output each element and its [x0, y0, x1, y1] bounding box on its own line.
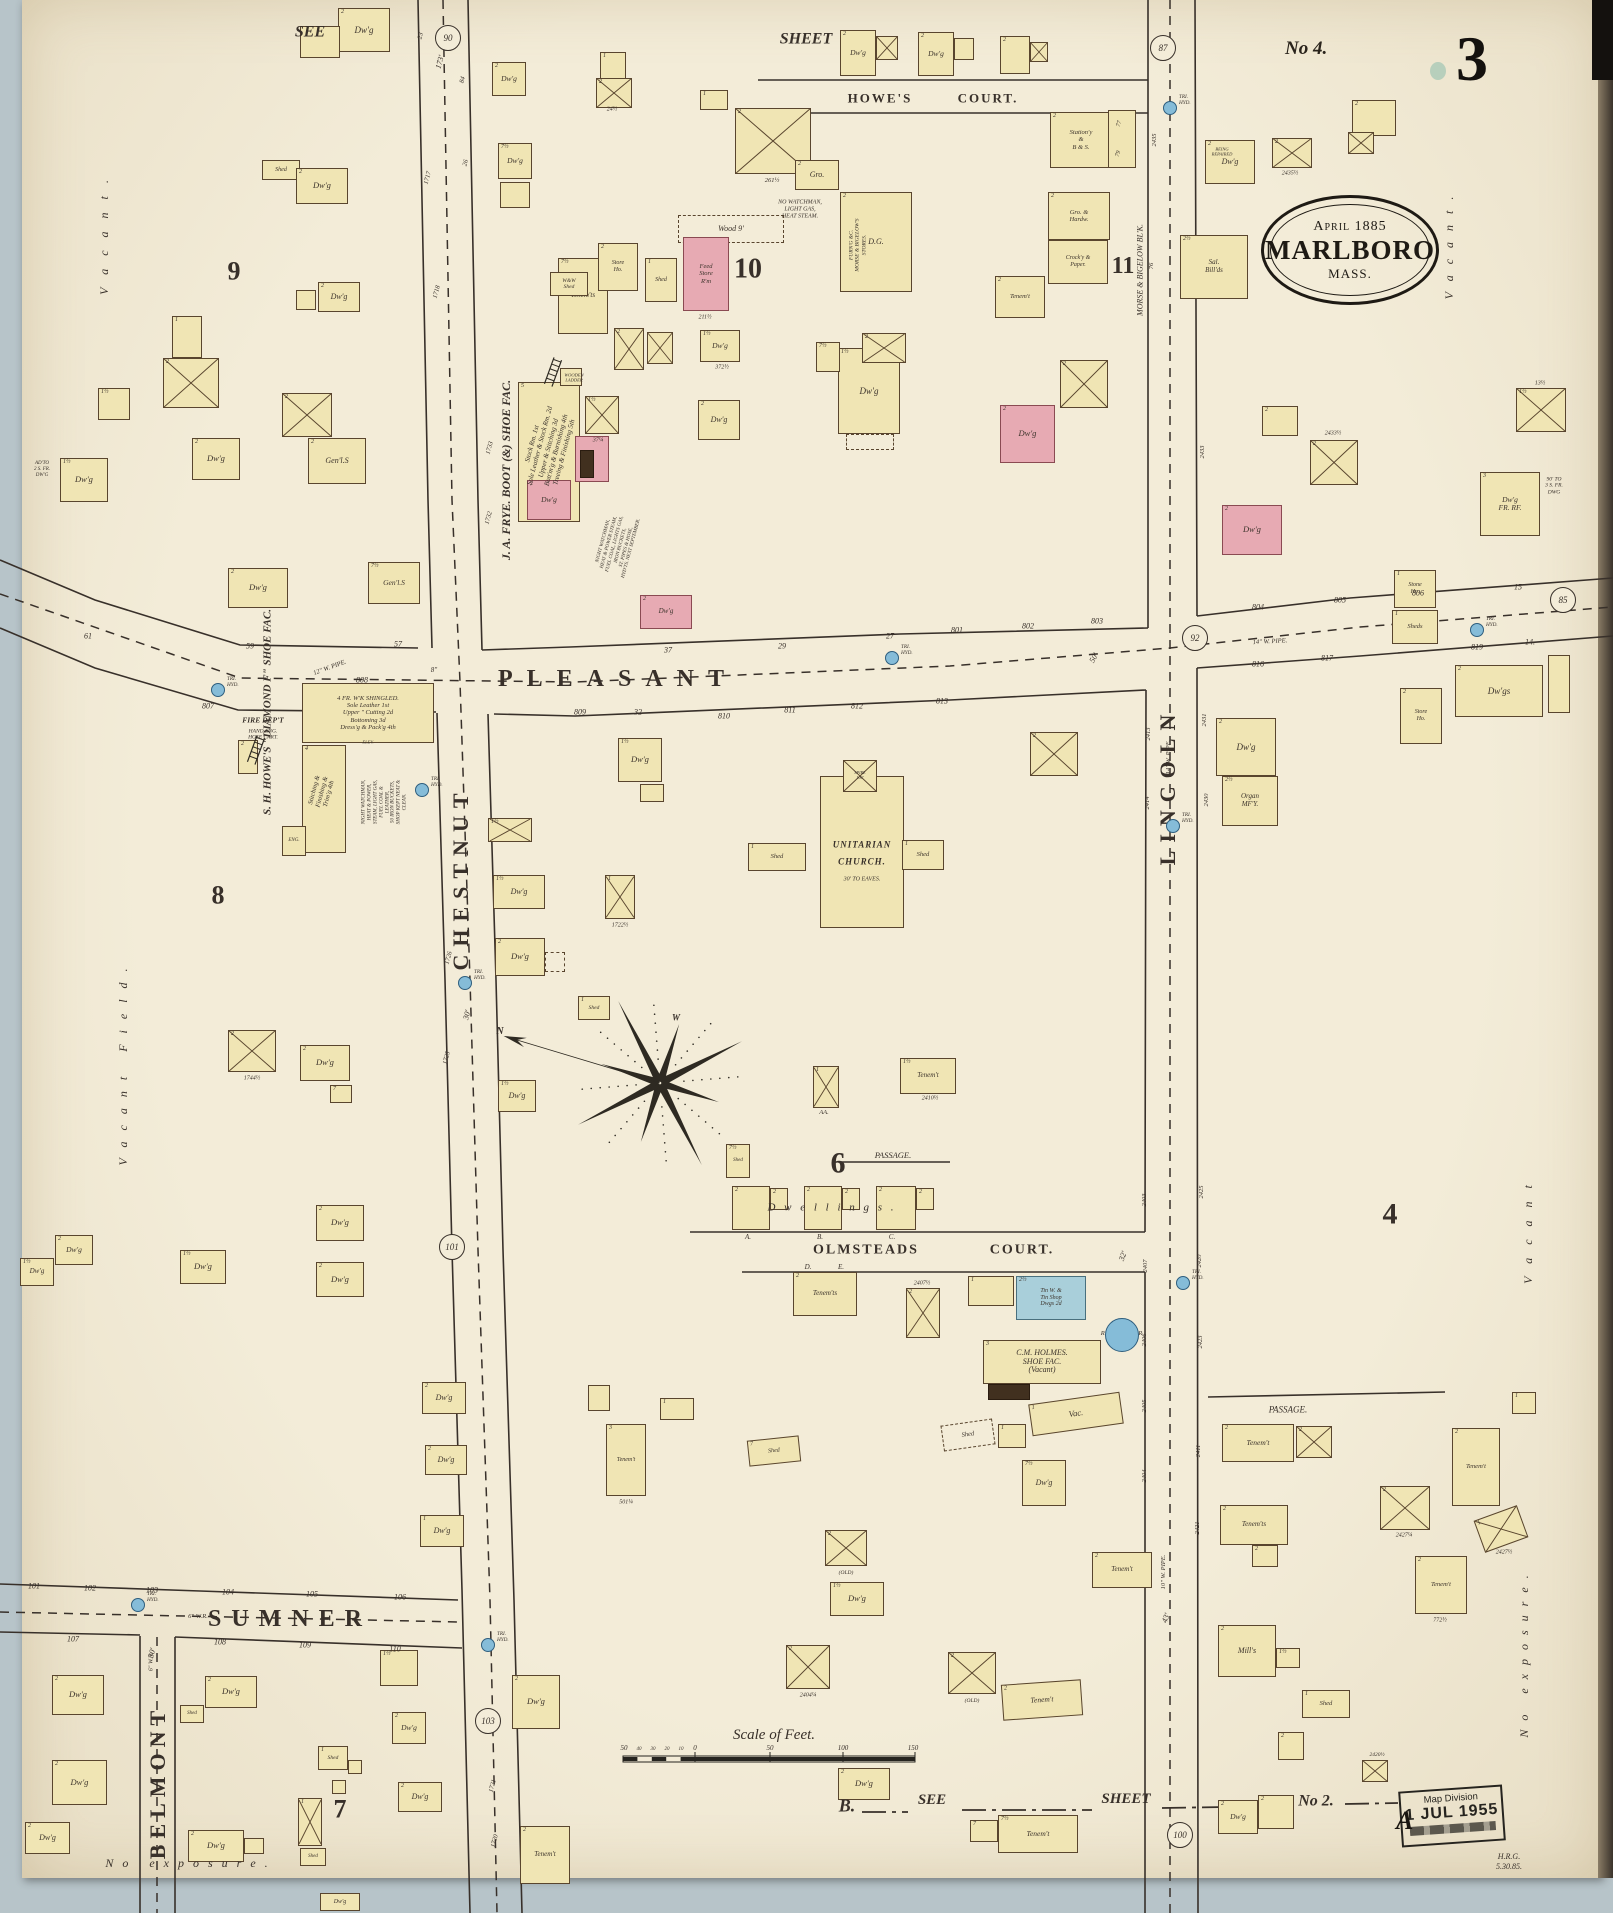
title-state: MASS.	[1328, 266, 1372, 282]
library-date-stamp: Map Division 1 JUL 1955	[1398, 1784, 1506, 1847]
sanborn-map-page: Dw'g2ShedDw'g2Dw'g2121½2Dw'g2Gen'l.S2Gen…	[0, 0, 1613, 1913]
title-city: MARLBORO	[1265, 235, 1435, 266]
surveyor-mark: H.R.G. 5.30.85.	[1496, 1852, 1522, 1871]
handwritten-letter: A	[1396, 1806, 1413, 1836]
map-title-oval: April 1885 MARLBORO MASS.	[1261, 195, 1439, 305]
adjoining-sheet-reference: No 4.	[1285, 38, 1327, 60]
sheet-number: 3	[1437, 22, 1507, 96]
title-date: April 1885	[1313, 219, 1386, 235]
